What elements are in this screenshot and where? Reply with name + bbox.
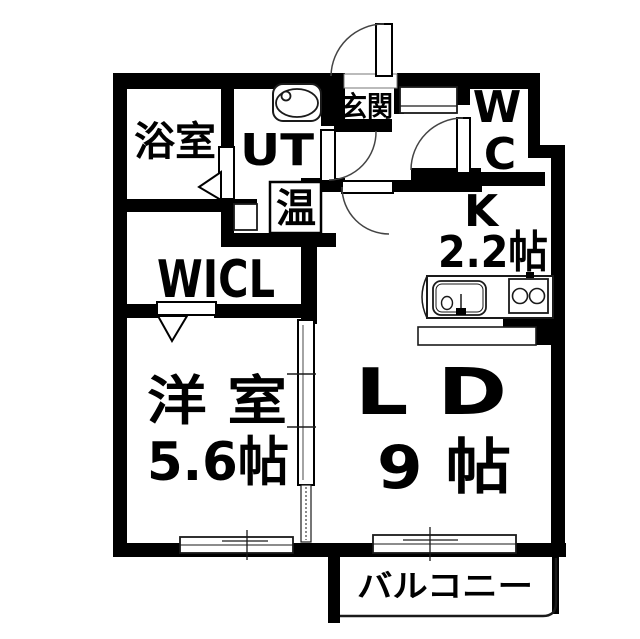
shoe-cabinet-body (400, 87, 457, 113)
wall-wicl-south-left (113, 304, 159, 318)
kitchen-faucet-base (456, 308, 466, 315)
wc-door-leaf (457, 118, 470, 173)
wall-wc-west-stub (457, 73, 470, 105)
wall-bath-east (221, 85, 234, 150)
floorplan-canvas: 浴室 UT 温 玄関 W C K 2.2帖 WICL 洋 室 5.6帖 L D … (0, 0, 640, 639)
wall-kitchen-pillar-block (536, 317, 553, 345)
utility-pan (234, 204, 257, 230)
kitchen-stove (509, 279, 548, 313)
kitchen-size-label: 2.2帖 (438, 227, 548, 278)
floorplan-drawing: 浴室 UT 温 玄関 W C K 2.2帖 WICL 洋 室 5.6帖 L D … (0, 0, 640, 639)
washbasin-faucet (282, 92, 291, 101)
closet-label: WICL (157, 250, 275, 310)
shoe-cabinet (400, 87, 457, 113)
balcony-label: バルコニー (357, 569, 533, 605)
utility-label: UT (240, 125, 314, 176)
wall-notch-white (540, 158, 551, 171)
western-room-label: 洋 室 (147, 371, 287, 432)
toilet-label-w: W (473, 82, 522, 133)
water-heater-label: 温 (276, 186, 316, 232)
kitchen-counter (418, 272, 553, 345)
bathroom-label: 浴室 (134, 119, 216, 165)
wall-ut-south (221, 233, 336, 247)
hall-ld-door-leaf (342, 181, 393, 193)
sliding-door-panel (298, 320, 314, 485)
wall-right-lower (551, 158, 565, 557)
western-room-size-label: 5.6帖 (147, 432, 289, 493)
utility-door-leaf (321, 130, 335, 181)
wall-ut-east (321, 73, 335, 126)
living-dining-size-label: 9 帖 (377, 433, 511, 503)
wall-balcony-left (328, 548, 340, 623)
entrance-door-leaf (376, 24, 392, 76)
washbasin (273, 84, 321, 121)
sliding-door-track (301, 485, 311, 542)
kitchen-lower-cabinet (418, 327, 536, 345)
toilet-label-c: C (484, 129, 516, 180)
wall-right-jog (528, 145, 565, 158)
entrance-label: 玄関 (341, 90, 393, 123)
living-dining-label: L D (355, 356, 507, 430)
